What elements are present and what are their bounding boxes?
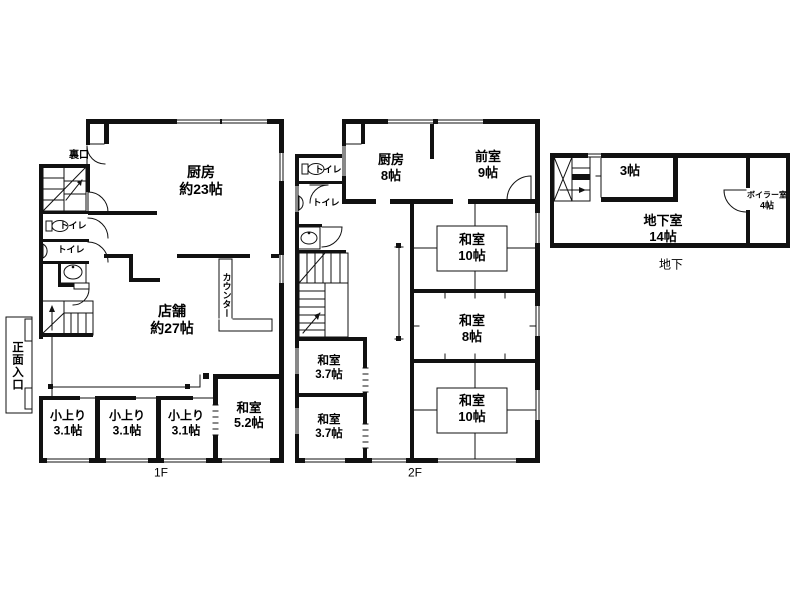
entrance-label: 正面入口 <box>10 341 24 391</box>
stairs-1f-upper <box>43 167 86 211</box>
room-label-koagari-2: 小上り3.1帖 <box>109 408 145 437</box>
toilet-label-2f-b: トイレ <box>312 198 339 209</box>
room-label-washitsu10-top: 和室10帖 <box>458 232 485 264</box>
stairs-1f-entrance <box>41 301 93 335</box>
toilet-label-1f-b: トイレ <box>57 245 84 256</box>
room-label-washitsu52: 和室5.2帖 <box>234 401 264 432</box>
room-label-washitsu8: 和室8帖 <box>459 313 485 345</box>
floor-label-basement: 地下 <box>659 258 683 273</box>
door-arc-boiler <box>724 190 746 212</box>
floorplan-drawing <box>0 0 800 600</box>
door-arcs-2f <box>310 176 531 448</box>
room-label-washitsu37-a: 和室3.7帖 <box>315 354 343 382</box>
room-label-kitchen-1f: 厨房約23帖 <box>179 164 223 198</box>
room-label-washitsu10-bottom: 和室10帖 <box>458 393 485 425</box>
room-label-chikashitsu: 地下室14帖 <box>643 213 682 245</box>
stairs-basement <box>554 157 590 201</box>
room-label-shop: 店舗約27帖 <box>150 303 194 337</box>
toilet-label-2f-a: トイレ <box>314 165 341 176</box>
counter-label: カウンター <box>221 273 232 318</box>
backdoor-label: 裏口 <box>69 150 89 162</box>
room-label-koagari-3: 小上り3.1帖 <box>168 408 204 437</box>
room-label-3jo: 3帖 <box>620 163 640 179</box>
stairs-2f <box>299 253 348 337</box>
room-label-zenshitsu: 前室9帖 <box>475 149 501 181</box>
floor-label-2f: 2F <box>408 466 422 481</box>
room-label-washitsu37-b: 和室3.7帖 <box>315 413 343 441</box>
toilet-label-1f-a: トイレ <box>59 221 86 232</box>
room-label-kitchen-2f: 厨房8帖 <box>378 152 404 184</box>
room-label-koagari-1: 小上り3.1帖 <box>50 408 86 437</box>
room-label-boiler: ボイラー室4帖 <box>747 191 787 212</box>
floorplan-canvas: 裏口 トイレ トイレ 厨房約23帖 店舗約27帖 カウンター 正面入口 小上り3… <box>0 0 800 600</box>
floor-label-1f: 1F <box>154 466 168 481</box>
